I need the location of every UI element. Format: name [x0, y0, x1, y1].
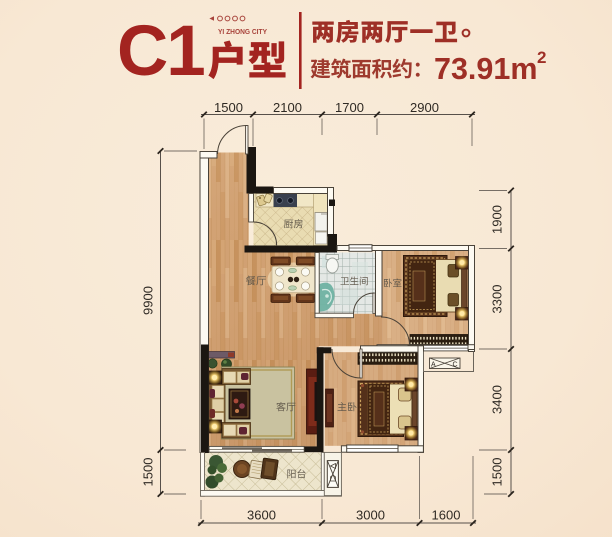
svg-text:3400: 3400 [490, 385, 505, 414]
svg-text:1600: 1600 [432, 508, 461, 523]
svg-text:3000: 3000 [356, 508, 385, 523]
svg-text:2100: 2100 [273, 100, 302, 115]
svg-text:2900: 2900 [410, 100, 439, 115]
svg-text:73.91m: 73.91m [434, 52, 537, 86]
svg-text:C1: C1 [117, 12, 204, 91]
svg-text:3300: 3300 [490, 285, 505, 314]
svg-text:1700: 1700 [335, 100, 364, 115]
svg-text:C: C [453, 362, 458, 369]
svg-text:9900: 9900 [141, 286, 156, 315]
svg-text:1500: 1500 [214, 100, 243, 115]
svg-text:2: 2 [537, 48, 546, 67]
svg-text:YI ZHONG CITY: YI ZHONG CITY [218, 27, 267, 36]
svg-text:A: A [431, 362, 436, 369]
svg-text:3600: 3600 [247, 508, 276, 523]
svg-text:1900: 1900 [490, 205, 505, 234]
svg-text:1500: 1500 [490, 458, 505, 487]
svg-text:1500: 1500 [141, 458, 156, 487]
